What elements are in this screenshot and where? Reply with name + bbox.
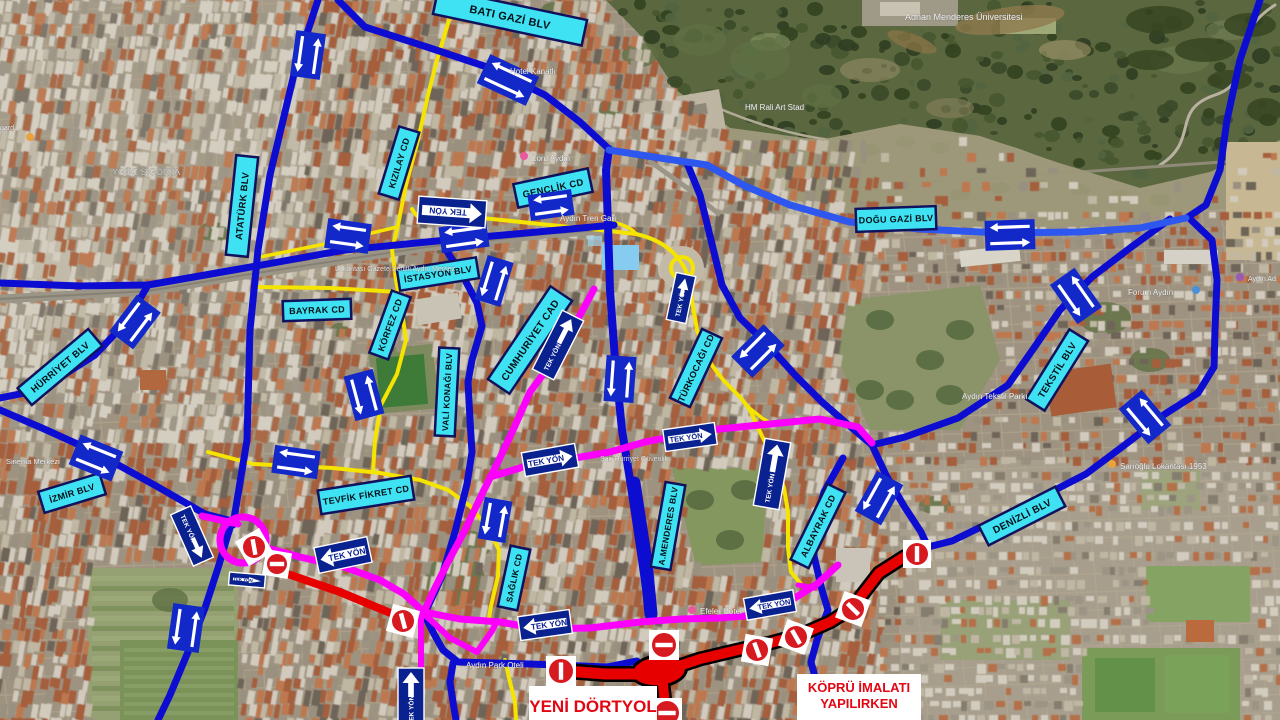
svg-text:Aydın Park Oteli: Aydın Park Oteli — [466, 661, 524, 670]
svg-text:YENİ DÖRTYOL: YENİ DÖRTYOL — [529, 697, 657, 716]
svg-text:Aydın Tekstil Parkı: Aydın Tekstil Parkı — [962, 392, 1028, 401]
svg-text:Hotel Kanatlı: Hotel Kanatlı — [510, 67, 556, 76]
svg-text:HM Rali Art Stad: HM Rali Art Stad — [745, 103, 804, 112]
svg-text:KÖPRÜ İMALATI: KÖPRÜ İMALATI — [808, 680, 910, 695]
svg-text:Aydın Tren Garı: Aydın Tren Garı — [560, 214, 616, 223]
svg-text:Şair Hürriyet Güvenlik: Şair Hürriyet Güvenlik — [600, 456, 669, 463]
svg-text:Adnan Menderes Üniversitesi: Adnan Menderes Üniversitesi — [905, 12, 1023, 22]
svg-text:YGÜÇ SİGORTA: YGÜÇ SİGORTA — [112, 167, 180, 177]
svg-text:Sinema Merkezi: Sinema Merkezi — [6, 457, 60, 466]
svg-text:Forum Aydın: Forum Aydın — [1128, 288, 1173, 297]
svg-text:YAPILIRKEN: YAPILIRKEN — [820, 696, 898, 711]
svg-text:Lokantası Gazete Şehitli Aydın: Lokantası Gazete Şehitli Aydın Merkez — [335, 266, 456, 273]
svg-text:Efeler Hotel: Efeler Hotel — [700, 607, 742, 616]
svg-text:Aydın Ad: Aydın Ad — [1248, 276, 1276, 283]
svg-text:BAYRAK CD: BAYRAK CD — [289, 304, 345, 316]
svg-text:Sarıoğlu Lokantası 1953: Sarıoğlu Lokantası 1953 — [1120, 462, 1207, 471]
svg-text:gard: gard — [0, 125, 14, 132]
svg-text:TEK YÖN: TEK YÖN — [407, 695, 416, 720]
svg-text:Lord Aydın: Lord Aydın — [532, 154, 570, 163]
